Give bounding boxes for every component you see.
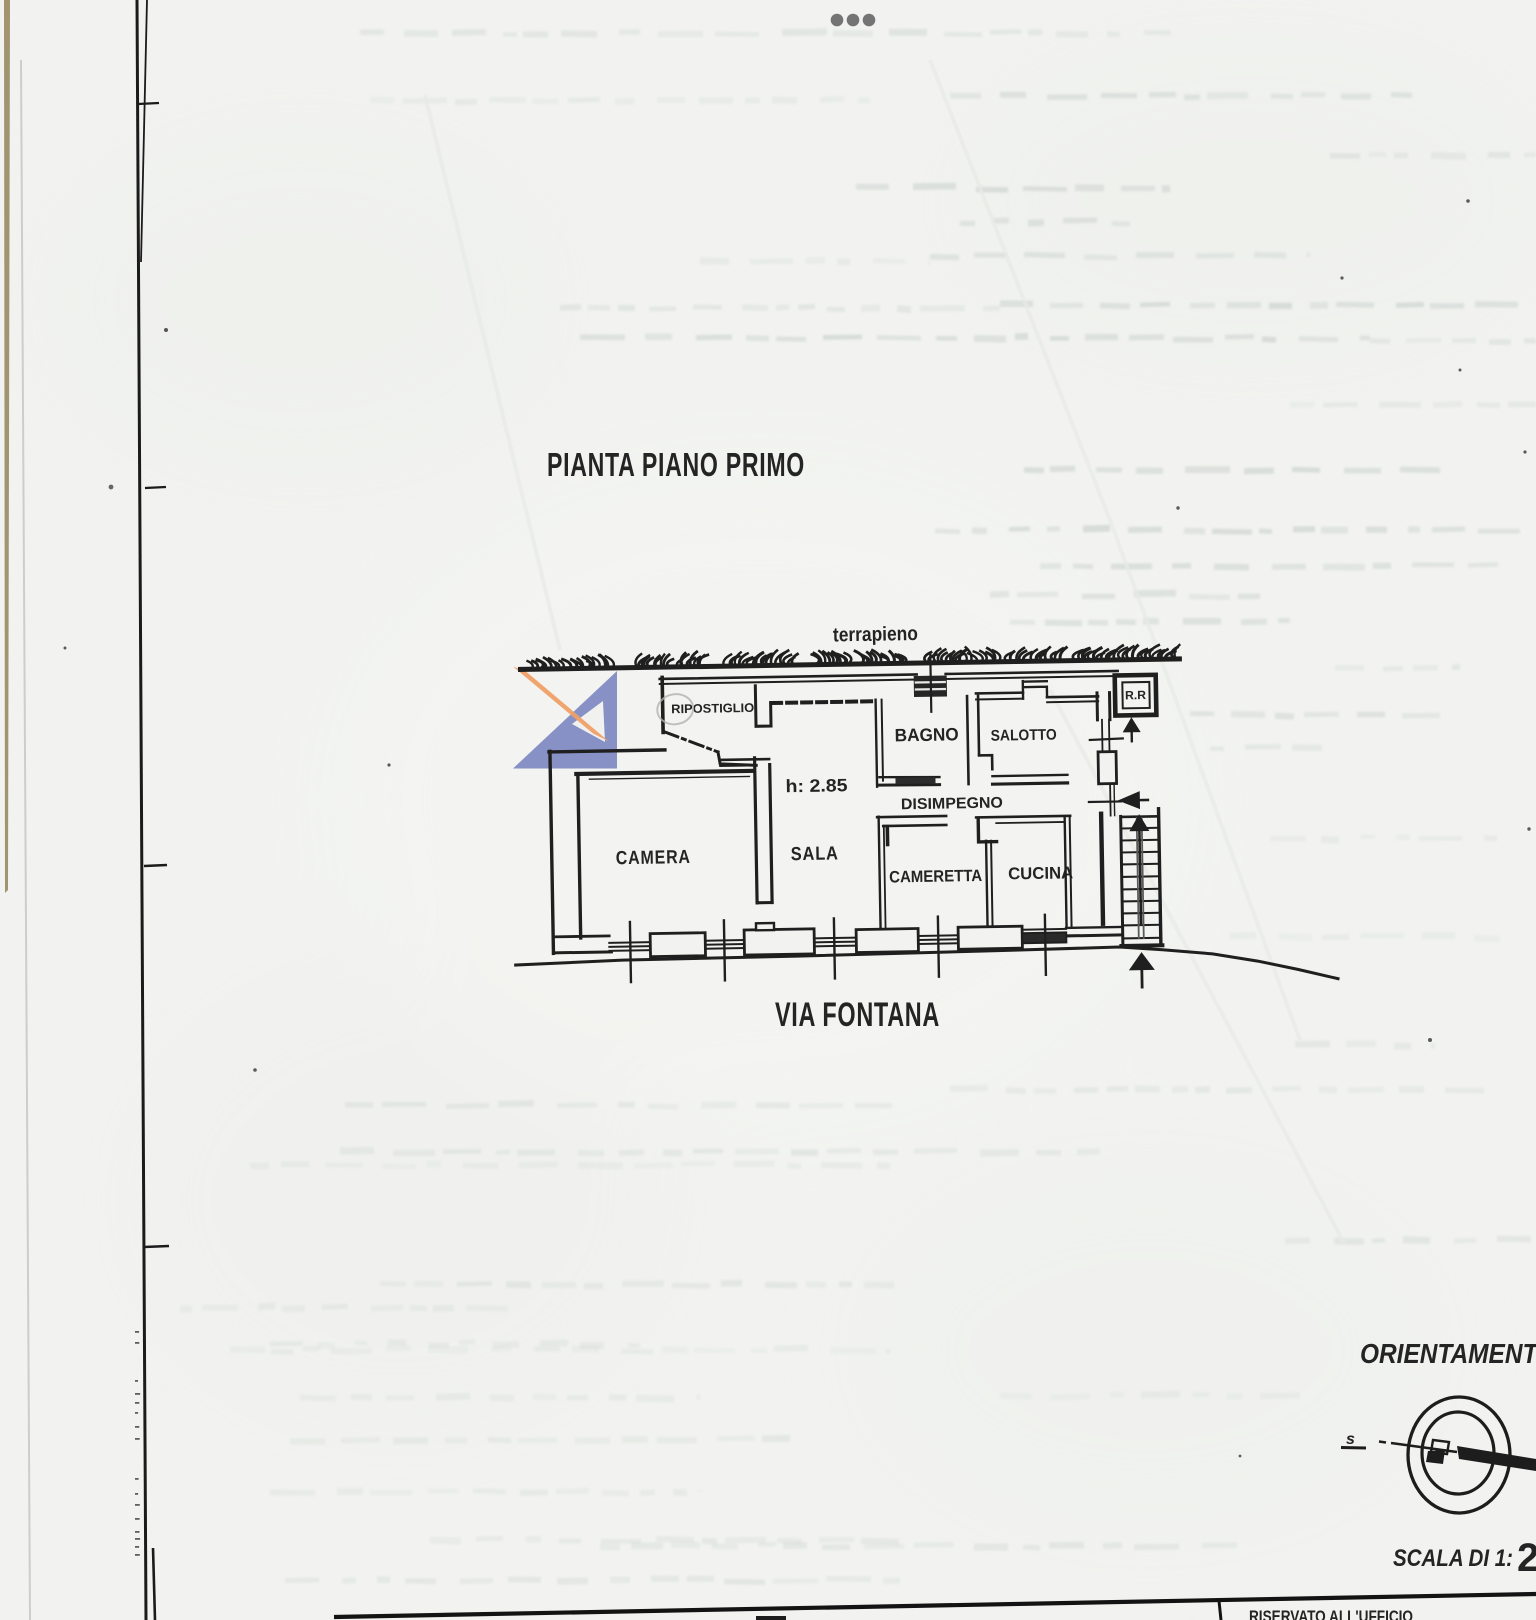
- svg-text:SALOTTO: SALOTTO: [991, 727, 1057, 745]
- svg-text:terrapieno: terrapieno: [833, 623, 918, 646]
- svg-text:CAMERA: CAMERA: [616, 847, 691, 869]
- svg-text:2: 2: [1517, 1536, 1536, 1580]
- svg-text:ORIENTAMENTO: ORIENTAMENTO: [1360, 1338, 1536, 1369]
- svg-text:CUCINA: CUCINA: [1008, 863, 1073, 883]
- svg-text:s: s: [1346, 1431, 1355, 1448]
- svg-text:SCALA DI 1:: SCALA DI 1:: [1393, 1545, 1513, 1572]
- svg-text:DISIMPEGNO: DISIMPEGNO: [901, 795, 1003, 814]
- svg-text:SALA: SALA: [791, 843, 839, 865]
- svg-text:h: 2.85: h: 2.85: [785, 775, 847, 796]
- svg-text:VIA FONTANA: VIA FONTANA: [775, 996, 940, 1034]
- svg-text:RISERVATO ALL'UFFICIO: RISERVATO ALL'UFFICIO: [1249, 1607, 1413, 1620]
- svg-text:CAMERETTA: CAMERETTA: [889, 867, 982, 887]
- svg-text:R.R: R.R: [1125, 688, 1147, 702]
- svg-text:RIPOSTIGLIO: RIPOSTIGLIO: [671, 701, 755, 716]
- svg-text:PIANTA PIANO PRIMO: PIANTA PIANO PRIMO: [547, 446, 805, 483]
- svg-text:BAGNO: BAGNO: [895, 724, 959, 745]
